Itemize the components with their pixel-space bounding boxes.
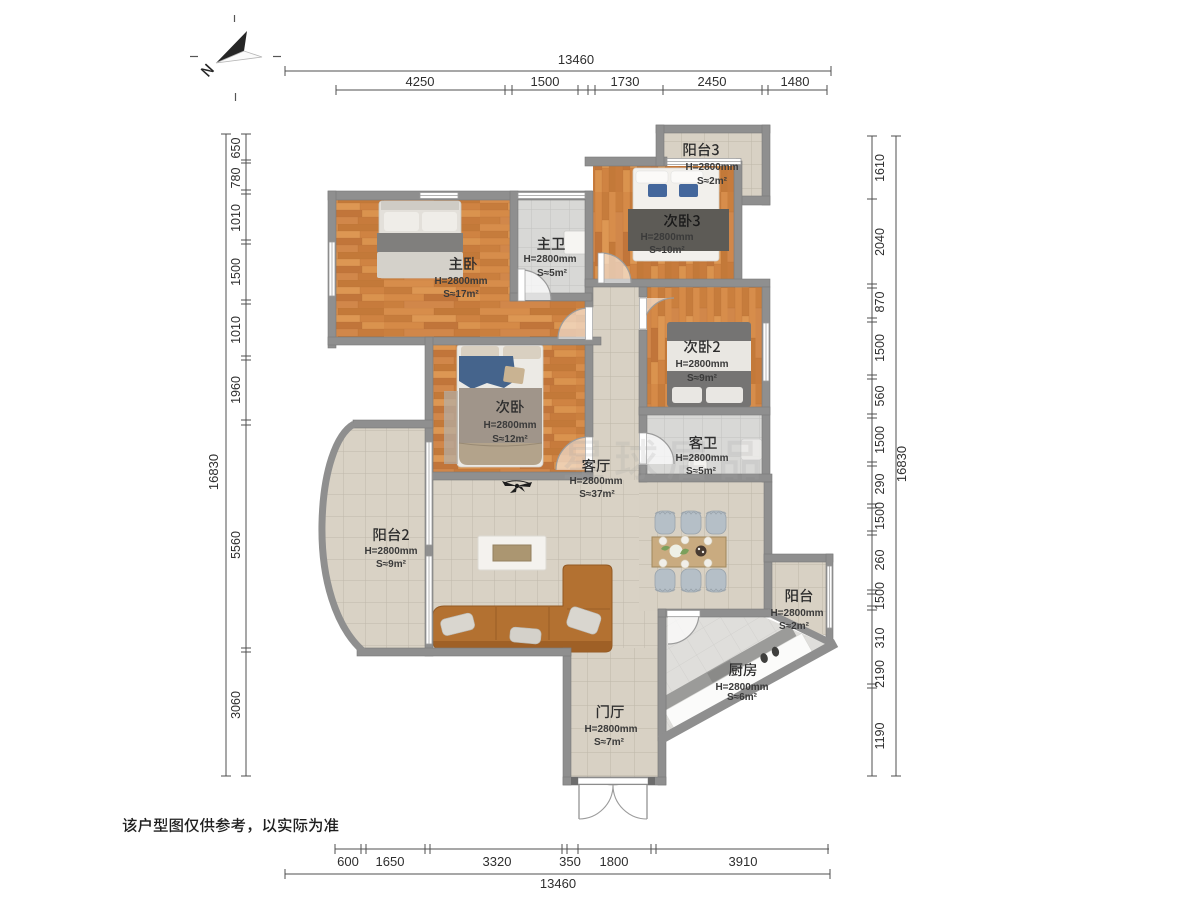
svg-text:S≈10m²: S≈10m² bbox=[649, 245, 685, 256]
svg-text:1010: 1010 bbox=[229, 204, 243, 232]
svg-text:2040: 2040 bbox=[873, 228, 887, 256]
svg-text:S≈5m²: S≈5m² bbox=[686, 466, 717, 477]
svg-text:1500: 1500 bbox=[873, 334, 887, 362]
svg-text:1190: 1190 bbox=[873, 723, 887, 750]
svg-text:1610: 1610 bbox=[873, 154, 887, 182]
svg-text:H=2800mm: H=2800mm bbox=[675, 359, 728, 370]
svg-text:S≈9m²: S≈9m² bbox=[687, 373, 718, 384]
svg-text:290: 290 bbox=[873, 474, 887, 495]
svg-text:870: 870 bbox=[873, 292, 887, 313]
svg-text:780: 780 bbox=[229, 168, 243, 189]
svg-text:13460: 13460 bbox=[558, 52, 594, 67]
svg-text:H=2800mm: H=2800mm bbox=[483, 420, 536, 431]
svg-text:1730: 1730 bbox=[611, 74, 640, 89]
svg-text:650: 650 bbox=[229, 138, 243, 159]
svg-text:1500: 1500 bbox=[229, 258, 243, 286]
svg-text:1500: 1500 bbox=[873, 426, 887, 454]
svg-text:5560: 5560 bbox=[229, 531, 243, 559]
svg-text:1650: 1650 bbox=[376, 854, 405, 869]
svg-text:3060: 3060 bbox=[229, 691, 243, 719]
svg-text:H=2800mm: H=2800mm bbox=[434, 276, 487, 287]
svg-text:H=2800mm: H=2800mm bbox=[364, 546, 417, 557]
svg-text:600: 600 bbox=[337, 854, 359, 869]
svg-text:H=2800mm: H=2800mm bbox=[569, 476, 622, 487]
svg-text:260: 260 bbox=[873, 550, 887, 571]
svg-text:H=2800mm: H=2800mm bbox=[685, 162, 738, 173]
svg-text:1500: 1500 bbox=[873, 502, 887, 530]
svg-text:H=2800mm: H=2800mm bbox=[675, 453, 728, 464]
svg-text:3320: 3320 bbox=[483, 854, 512, 869]
svg-text:H=2800mm: H=2800mm bbox=[770, 608, 823, 619]
svg-text:S≈7m²: S≈7m² bbox=[594, 737, 625, 748]
svg-text:1960: 1960 bbox=[229, 376, 243, 404]
svg-text:S≈12m²: S≈12m² bbox=[492, 434, 528, 445]
svg-text:S≈37m²: S≈37m² bbox=[579, 489, 615, 500]
svg-text:2190: 2190 bbox=[873, 660, 887, 688]
svg-text:S≈2m²: S≈2m² bbox=[779, 621, 810, 632]
svg-text:1500: 1500 bbox=[531, 74, 560, 89]
svg-text:16830: 16830 bbox=[894, 446, 909, 482]
svg-text:16830: 16830 bbox=[206, 454, 221, 490]
svg-text:560: 560 bbox=[873, 386, 887, 407]
svg-text:S≈5m²: S≈5m² bbox=[537, 268, 568, 279]
svg-text:310: 310 bbox=[873, 628, 887, 649]
svg-text:H=2800mm: H=2800mm bbox=[584, 724, 637, 735]
svg-text:S≈17m²: S≈17m² bbox=[443, 289, 479, 300]
svg-text:4250: 4250 bbox=[406, 74, 435, 89]
svg-text:S≈6m²: S≈6m² bbox=[727, 692, 758, 703]
svg-text:S≈2m²: S≈2m² bbox=[697, 176, 728, 187]
svg-text:1800: 1800 bbox=[600, 854, 629, 869]
svg-text:1500: 1500 bbox=[873, 582, 887, 610]
svg-text:13460: 13460 bbox=[540, 876, 576, 891]
svg-text:1010: 1010 bbox=[229, 316, 243, 344]
svg-text:1480: 1480 bbox=[781, 74, 810, 89]
svg-text:S≈9m²: S≈9m² bbox=[376, 559, 407, 570]
svg-text:H=2800mm: H=2800mm bbox=[523, 254, 576, 265]
svg-text:2450: 2450 bbox=[698, 74, 727, 89]
svg-text:3910: 3910 bbox=[729, 854, 758, 869]
svg-text:350: 350 bbox=[559, 854, 581, 869]
svg-text:H=2800mm: H=2800mm bbox=[640, 232, 693, 243]
